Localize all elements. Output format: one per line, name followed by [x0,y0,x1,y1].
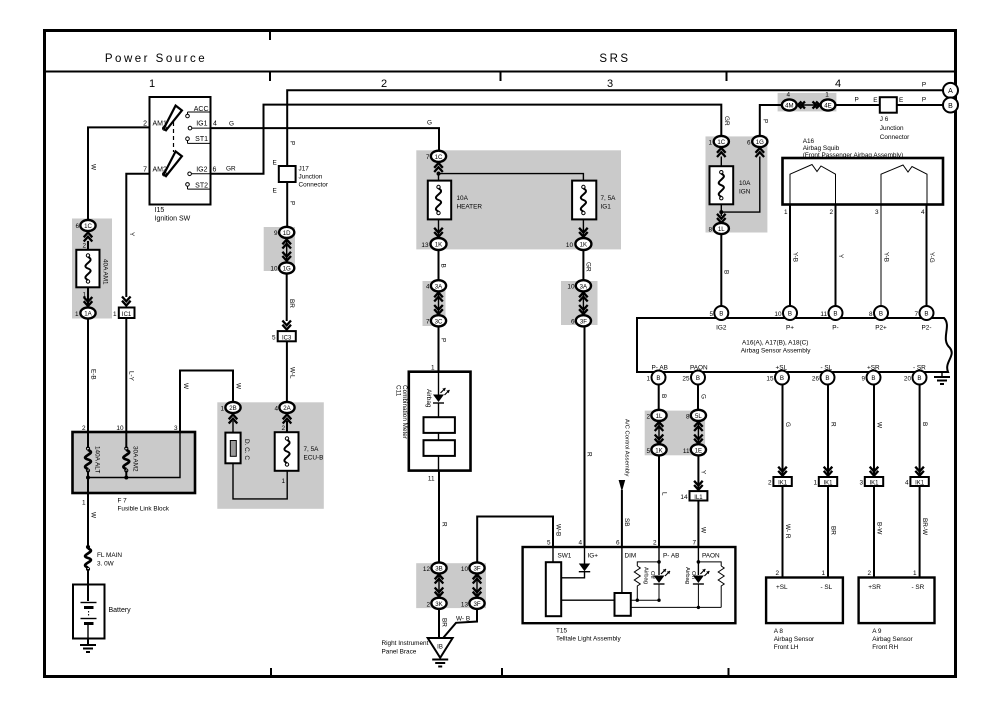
svg-text:B: B [879,311,883,318]
svg-text:IG1: IG1 [196,121,207,128]
svg-text:4: 4 [213,121,217,128]
svg-text:E: E [273,160,277,167]
svg-text:DIM: DIM [625,553,637,560]
svg-text:4: 4 [578,540,582,547]
svg-text:A 9: A 9 [872,628,882,635]
svg-text:IC1: IC1 [122,312,132,318]
svg-text:R: R [829,422,836,427]
svg-text:4: 4 [787,92,791,99]
svg-text:5: 5 [547,540,551,547]
svg-text:IK1: IK1 [869,480,879,486]
svg-text:7, 5A: 7, 5A [304,446,320,453]
svg-text:15: 15 [766,376,774,383]
svg-text:13: 13 [461,601,469,608]
svg-text:8: 8 [686,413,690,420]
svg-text:Airbag: Airbag [425,389,432,408]
svg-text:Connector: Connector [880,134,910,141]
svg-text:1K: 1K [580,242,587,249]
svg-text:2: 2 [646,413,650,420]
svg-text:4: 4 [835,78,841,90]
svg-text:5: 5 [272,335,276,342]
svg-text:SB: SB [623,518,630,527]
svg-text:10A: 10A [739,180,751,187]
svg-text:E: E [899,97,903,104]
svg-text:B: B [788,311,792,318]
svg-text:P-: P- [832,325,838,332]
svg-text:2: 2 [775,570,779,577]
svg-text:140A ALT: 140A ALT [94,446,101,473]
svg-text:6: 6 [75,223,79,230]
svg-text:10: 10 [116,425,124,432]
svg-text:Y-B: Y-B [882,252,889,262]
svg-text:IK1: IK1 [778,480,788,486]
svg-text:3F: 3F [580,318,587,325]
svg-text:3K: 3K [435,601,442,608]
svg-text:1E: 1E [695,447,702,454]
svg-text:7, 5A: 7, 5A [601,195,617,202]
svg-text:1: 1 [113,311,117,318]
svg-text:11: 11 [428,476,435,483]
svg-text:W-B: W-B [555,524,562,536]
svg-text:9: 9 [861,376,865,383]
svg-text:4E: 4E [824,103,831,110]
svg-text:3: 3 [859,480,863,487]
svg-text:3B: 3B [435,566,442,573]
svg-text:L: L [661,492,668,496]
svg-text:2: 2 [867,570,871,577]
svg-text:1A: 1A [84,311,92,318]
svg-text:E: E [273,188,277,195]
svg-text:11: 11 [820,311,827,318]
svg-text:W: W [234,383,241,390]
svg-text:7: 7 [143,167,147,174]
svg-text:Off: Off [649,571,655,579]
svg-text:5: 5 [646,448,650,455]
svg-text:BR: BR [441,618,448,627]
svg-text:D. C. C: D. C. C [243,439,250,460]
svg-text:G: G [784,422,791,427]
svg-text:3: 3 [607,78,613,90]
svg-text:B: B [719,311,723,318]
svg-text:Airbag Sensor: Airbag Sensor [774,636,815,643]
svg-text:3F: 3F [473,601,480,608]
svg-text:Right Instrument: Right Instrument [382,640,429,647]
svg-text:IG2: IG2 [716,325,727,332]
svg-text:1C: 1C [435,154,443,161]
svg-text:A/C Control Assembly: A/C Control Assembly [623,419,629,476]
svg-text:R: R [440,522,447,527]
svg-text:GR: GR [585,262,592,272]
svg-text:Fusible Link Block: Fusible Link Block [118,506,170,513]
svg-text:P: P [440,338,447,342]
svg-text:2: 2 [381,78,387,90]
svg-text:On: On [690,571,696,579]
svg-text:G: G [427,120,432,127]
svg-text:Front LH: Front LH [774,644,799,651]
svg-text:1: 1 [431,365,435,372]
svg-text:1L: 1L [718,226,725,233]
svg-text:B: B [723,270,730,274]
svg-text:Power Source: Power Source [105,53,207,65]
svg-text:B: B [921,422,928,426]
svg-text:7: 7 [914,311,918,318]
svg-text:1C: 1C [84,223,92,230]
svg-text:R: R [586,452,593,457]
svg-text:1: 1 [708,140,712,147]
svg-text:10: 10 [774,311,782,318]
svg-text:4: 4 [905,480,909,487]
svg-text:1: 1 [821,570,825,577]
svg-text:Battery: Battery [109,607,132,614]
svg-text:Airbag Sensor Assembly: Airbag Sensor Assembly [741,348,811,355]
svg-text:1: 1 [149,78,155,90]
svg-text:I15: I15 [155,207,165,214]
svg-text:3. 0W: 3. 0W [97,561,115,568]
svg-text:BR: BR [288,299,295,308]
svg-text:B: B [440,264,447,268]
svg-text:IGN: IGN [739,189,751,196]
svg-text:13: 13 [421,242,429,249]
svg-text:1G: 1G [756,139,764,146]
svg-text:1C: 1C [717,139,725,146]
svg-text:E-B: E-B [89,369,96,380]
svg-text:B: B [924,311,928,318]
svg-text:B: B [833,311,837,318]
svg-text:1K: 1K [655,447,662,454]
svg-text:5L: 5L [695,413,702,420]
svg-text:Ignition SW: Ignition SW [155,216,191,223]
svg-text:B: B [825,375,829,382]
svg-text:2: 2 [82,425,86,432]
svg-text:2: 2 [829,209,833,216]
svg-text:W-L: W-L [288,367,295,379]
svg-text:Y: Y [128,232,135,237]
svg-text:J17: J17 [299,166,310,173]
svg-text:Airbag Squib: Airbag Squib [803,145,840,152]
svg-text:8: 8 [708,227,712,234]
svg-text:40A AM1: 40A AM1 [101,259,108,285]
svg-text:HEATER: HEATER [457,204,483,211]
svg-text:A16: A16 [803,138,815,145]
svg-text:- SL: - SL [821,584,833,591]
svg-text:B: B [656,375,660,382]
svg-text:2: 2 [281,425,285,432]
svg-text:IG+: IG+ [588,553,599,560]
svg-text:BR: BR [829,526,836,535]
svg-text:Y-B: Y-B [791,252,798,262]
svg-text:T15: T15 [556,628,567,635]
svg-text:W: W [89,512,96,519]
svg-text:1: 1 [813,480,817,487]
svg-text:5: 5 [709,311,713,318]
svg-text:2: 2 [82,243,86,250]
svg-text:B: B [660,394,667,398]
svg-text:6: 6 [571,319,575,326]
svg-text:8: 8 [869,311,873,318]
svg-text:P: P [922,97,926,104]
svg-text:3C: 3C [435,318,443,325]
svg-text:W- B: W- B [456,616,470,623]
svg-text:25: 25 [682,376,690,383]
svg-text:7: 7 [692,540,696,547]
svg-text:B: B [696,375,700,382]
svg-text:E: E [873,97,877,104]
svg-text:P: P [288,201,295,205]
svg-text:G: G [699,394,706,399]
svg-text:FL MAIN: FL MAIN [97,552,122,559]
svg-text:9: 9 [274,230,278,237]
svg-text:B: B [780,375,784,382]
svg-text:BR-W: BR-W [921,518,928,536]
svg-text:B-W: B-W [875,522,882,535]
svg-text:ECU-B: ECU-B [304,455,324,462]
svg-text:10: 10 [566,242,574,249]
svg-text:Y: Y [837,254,844,259]
svg-text:P2+: P2+ [875,325,887,332]
svg-text:Front RH: Front RH [872,644,898,651]
svg-text:+SR: +SR [868,584,881,591]
svg-text:L-Y: L-Y [128,371,135,382]
svg-text:GR: GR [226,166,236,173]
svg-text:B: B [871,375,875,382]
svg-text:11: 11 [683,448,690,455]
svg-text:W: W [182,383,189,390]
svg-text:Y: Y [700,470,707,475]
svg-text:1: 1 [646,376,650,383]
svg-text:Connector: Connector [299,182,329,189]
svg-text:20: 20 [904,376,912,383]
svg-text:Telltale Light Assembly: Telltale Light Assembly [556,636,621,643]
svg-text:4M: 4M [785,103,793,110]
svg-text:PAON: PAON [702,553,720,560]
svg-text:SW1: SW1 [558,553,572,560]
svg-text:3: 3 [174,425,178,432]
svg-text:P: P [854,97,858,104]
svg-text:4: 4 [921,209,925,216]
svg-text:1K: 1K [435,242,442,249]
svg-text:+SL: +SL [776,584,788,591]
svg-text:SRS: SRS [599,53,630,65]
svg-text:4: 4 [274,406,278,413]
svg-text:3A: 3A [435,283,443,290]
svg-text:3F: 3F [473,566,480,573]
svg-text:2: 2 [653,540,657,547]
svg-text:ST2: ST2 [195,183,208,190]
svg-text:B: B [948,103,953,110]
svg-text:IG2: IG2 [196,167,207,174]
svg-text:GR: GR [723,116,730,126]
svg-text:Airbag: Airbag [643,567,649,584]
svg-text:F 7: F 7 [118,498,128,505]
svg-text:IB: IB [437,645,443,651]
svg-text:4: 4 [426,284,430,291]
svg-text:10: 10 [567,284,575,291]
svg-text:W: W [700,527,707,534]
svg-text:2: 2 [426,601,430,608]
svg-text:Combination Meter: Combination Meter [401,385,408,440]
svg-text:W: W [875,422,882,429]
svg-text:P2-: P2- [922,325,932,332]
svg-text:7: 7 [426,154,430,161]
svg-text:6: 6 [747,140,751,147]
svg-text:1D: 1D [283,230,291,237]
svg-text:26: 26 [812,376,820,383]
svg-text:A: A [948,88,953,95]
svg-text:2B: 2B [229,405,236,412]
svg-text:1: 1 [75,311,79,318]
svg-text:Y-G: Y-G [928,252,935,263]
svg-text:1: 1 [82,500,86,507]
svg-text:1: 1 [784,209,788,216]
svg-text:B: B [917,375,921,382]
svg-text:14: 14 [680,494,688,501]
svg-text:Panel Brace: Panel Brace [382,649,417,656]
svg-text:W- R: W- R [784,524,791,539]
svg-text:6: 6 [616,540,620,547]
svg-text:Junction: Junction [880,125,904,132]
svg-text:Airbag Sensor: Airbag Sensor [872,636,913,643]
svg-text:1: 1 [220,406,224,413]
svg-text:IG1: IG1 [601,204,612,211]
svg-text:J 6: J 6 [880,116,889,123]
svg-text:A 8: A 8 [774,628,784,635]
svg-text:1: 1 [281,478,285,485]
svg-text:6: 6 [213,167,217,174]
svg-text:A16(A), A17(B), A18(C): A16(A), A17(B), A18(C) [742,340,808,347]
svg-text:P: P [922,82,926,89]
svg-text:IK1: IK1 [915,480,925,486]
svg-text:10A: 10A [457,195,469,202]
svg-text:W: W [90,164,97,171]
svg-text:IK1: IK1 [823,480,833,486]
svg-text:2A: 2A [283,405,291,412]
svg-text:P- AB: P- AB [663,553,679,560]
svg-text:3A: 3A [580,283,588,290]
svg-text:ST1: ST1 [195,136,208,143]
svg-text:10: 10 [270,266,278,273]
svg-text:IL1: IL1 [694,495,703,501]
svg-text:G: G [229,121,234,128]
svg-text:2: 2 [768,480,772,487]
svg-text:P: P [761,119,768,123]
svg-text:P+: P+ [786,325,794,332]
svg-text:10: 10 [461,566,469,573]
svg-text:- SR: - SR [912,584,925,591]
svg-text:1: 1 [913,570,917,577]
svg-text:3: 3 [875,209,879,216]
svg-text:IC3: IC3 [282,335,292,341]
svg-text:1G: 1G [283,266,291,273]
svg-text:30A AM2: 30A AM2 [132,446,139,472]
svg-text:1L: 1L [656,413,663,420]
svg-text:7: 7 [426,319,430,326]
svg-text:P: P [288,141,295,145]
svg-text:1: 1 [825,92,829,99]
svg-text:Junction: Junction [299,174,323,181]
svg-text:12: 12 [423,566,431,573]
